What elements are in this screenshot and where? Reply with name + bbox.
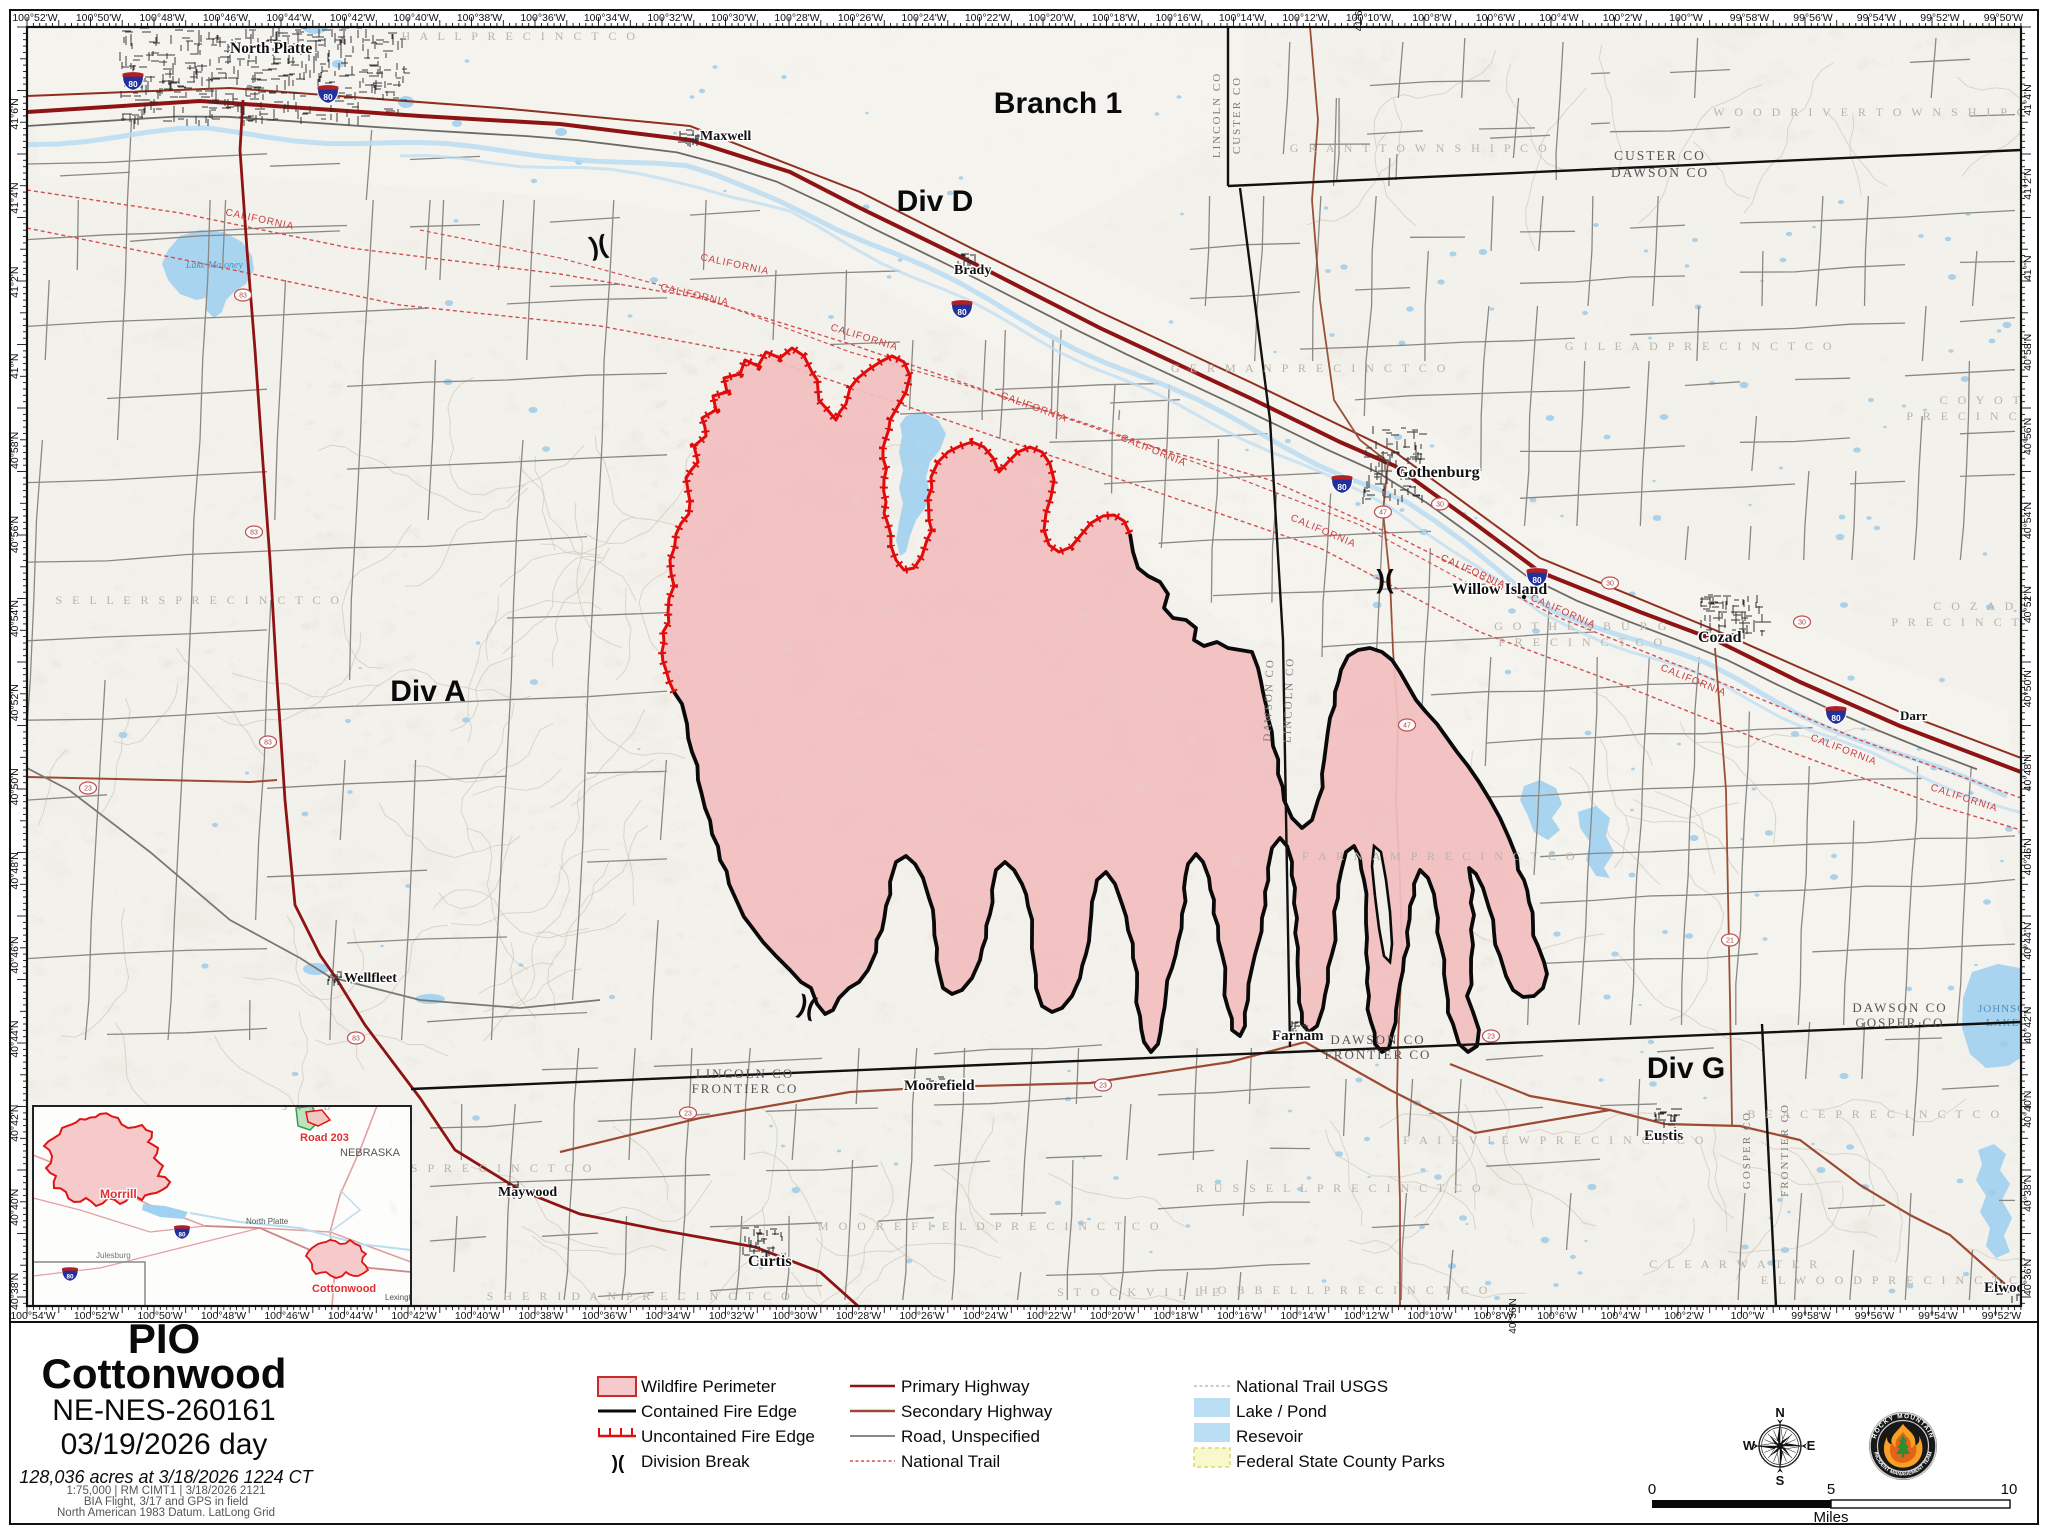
svg-text:23: 23	[1099, 1083, 1107, 1090]
svg-text:100°'W: 100°'W	[1669, 12, 1703, 24]
svg-text:S T O C K V I L L E: S T O C K V I L L E	[1057, 1285, 1223, 1299]
svg-text:100°26'W: 100°26'W	[899, 1310, 944, 1322]
svg-text:Resevoir: Resevoir	[1236, 1427, 1303, 1446]
svg-text:100°2'W: 100°2'W	[1603, 12, 1643, 24]
svg-text:W: W	[1743, 1438, 1756, 1453]
svg-text:99°58'W: 99°58'W	[1730, 12, 1770, 24]
svg-text:100°32'W: 100°32'W	[709, 1310, 754, 1322]
svg-text:40°56'N: 40°56'N	[9, 516, 21, 553]
svg-text:5: 5	[1827, 1481, 1835, 1498]
svg-text:FRONTIER CO: FRONTIER CO	[1325, 1047, 1432, 1062]
svg-text:Div G: Div G	[1647, 1052, 1725, 1085]
svg-text:100°32'W: 100°32'W	[647, 12, 692, 24]
svg-text:Branch 1: Branch 1	[994, 87, 1122, 120]
svg-text:40°44'N: 40°44'N	[9, 1021, 21, 1058]
svg-text:Div A: Div A	[390, 675, 466, 708]
svg-text:23: 23	[84, 786, 92, 793]
svg-text:100°4'W: 100°4'W	[1539, 12, 1579, 24]
svg-text:99°58'W: 99°58'W	[1791, 1310, 1831, 1322]
svg-text:100°22'W: 100°22'W	[1026, 1310, 1071, 1322]
svg-text:41°4'N: 41°4'N	[2022, 84, 2034, 115]
svg-text:80: 80	[128, 79, 138, 89]
svg-text:Morrill: Morrill	[100, 1187, 137, 1201]
svg-text:100°44'W: 100°44'W	[266, 12, 311, 24]
svg-text:F A R N A M P R E C I N C T C: F A R N A M P R E C I N C T C O	[1302, 849, 1578, 863]
svg-text:Contained Fire Edge: Contained Fire Edge	[641, 1402, 797, 1421]
svg-text:40°44'N: 40°44'N	[2022, 922, 2034, 959]
svg-text:40°56'N: 40°56'N	[2022, 418, 2034, 455]
svg-text:40°54'N: 40°54'N	[2022, 502, 2034, 539]
svg-text:80: 80	[1337, 482, 1347, 492]
svg-text:40°46'N: 40°46'N	[9, 936, 21, 973]
svg-text:N: N	[1775, 1405, 1784, 1420]
svg-text:CUSTER CO: CUSTER CO	[1231, 76, 1243, 154]
svg-text:Division Break: Division Break	[641, 1452, 750, 1471]
svg-text:100°36'W: 100°36'W	[582, 1310, 627, 1322]
svg-text:80: 80	[66, 1273, 74, 1280]
svg-text:Gothenburg: Gothenburg	[1396, 464, 1480, 481]
svg-text:100°28'W: 100°28'W	[774, 12, 819, 24]
svg-text:40°38'N: 40°38'N	[2022, 1175, 2034, 1212]
svg-text:99°54'W: 99°54'W	[1857, 12, 1897, 24]
svg-text:80: 80	[1532, 575, 1542, 585]
svg-text:W O O D R I V E R T O W N S: W O O D R I V E R T O W N S H I P C O	[1713, 105, 2047, 119]
svg-text:100°34'W: 100°34'W	[584, 12, 629, 24]
svg-text:41°6'N: 41°6'N	[9, 98, 21, 129]
svg-text:41°2'N: 41°2'N	[2022, 168, 2034, 199]
svg-text:DAWSON CO: DAWSON CO	[1330, 1032, 1425, 1047]
svg-text:41°6': 41°6'	[1354, 9, 1365, 32]
svg-text:Brady: Brady	[954, 263, 991, 278]
svg-text:99°54'W: 99°54'W	[1918, 1310, 1958, 1322]
svg-text:100°38'W: 100°38'W	[457, 12, 502, 24]
svg-text:Curtis: Curtis	[748, 1253, 792, 1270]
svg-text:100°42'W: 100°42'W	[330, 12, 375, 24]
svg-text:Wellfleet: Wellfleet	[344, 971, 397, 986]
svg-text:Primary Highway: Primary Highway	[901, 1377, 1030, 1396]
svg-text:Lake / Pond: Lake / Pond	[1236, 1402, 1327, 1421]
svg-text:40°52'N: 40°52'N	[2022, 586, 2034, 623]
svg-text:100°52'W: 100°52'W	[74, 1310, 119, 1322]
svg-text:Federal State County Parks: Federal State County Parks	[1236, 1452, 1445, 1471]
svg-text:)(: )(	[1376, 564, 1394, 594]
svg-text:100°10'W: 100°10'W	[1407, 1310, 1452, 1322]
svg-text:40°42'N: 40°42'N	[9, 1105, 21, 1142]
svg-text:Secondary Highway: Secondary Highway	[901, 1402, 1053, 1421]
svg-text:100°36'W: 100°36'W	[520, 12, 565, 24]
svg-text:41°'N: 41°'N	[9, 354, 21, 379]
svg-text:100°34'W: 100°34'W	[645, 1310, 690, 1322]
svg-text:Wildfire Perimeter: Wildfire Perimeter	[641, 1377, 776, 1396]
svg-text:83: 83	[264, 740, 272, 747]
svg-text:North Platte: North Platte	[246, 1217, 289, 1226]
svg-text:100°24'W: 100°24'W	[963, 1310, 1008, 1322]
svg-text:40°38'N: 40°38'N	[9, 1273, 21, 1310]
svg-text:G I L E A D P R E C I N C T: G I L E A D P R E C I N C T C O	[1565, 339, 1835, 353]
svg-text:40°40'N: 40°40'N	[9, 1189, 21, 1226]
svg-text:Uncontained Fire Edge: Uncontained Fire Edge	[641, 1427, 815, 1446]
svg-text:100°26'W: 100°26'W	[838, 12, 883, 24]
svg-text:S E L L E R S P R E C I N C: S E L L E R S P R E C I N C T C O	[55, 593, 342, 607]
svg-text:99°52'W: 99°52'W	[1920, 12, 1960, 24]
svg-text:100°50'W: 100°50'W	[76, 12, 121, 24]
svg-text:Cottonwood: Cottonwood	[312, 1283, 376, 1295]
svg-text:80: 80	[178, 1231, 186, 1238]
svg-text:30: 30	[1606, 581, 1614, 588]
svg-text:100°2'W: 100°2'W	[1664, 1310, 1704, 1322]
svg-text:80: 80	[957, 307, 967, 317]
svg-text:99°56'W: 99°56'W	[1793, 12, 1833, 24]
svg-text:B E A C E P R E C I N C T C: B E A C E P R E C I N C T C O	[1747, 1107, 2002, 1121]
svg-text:Maywood: Maywood	[498, 1185, 557, 1200]
svg-text:F A I R V I E W P R E C I N: F A I R V I E W P R E C I N C T C O	[1403, 1133, 1707, 1147]
svg-text:)(: )(	[612, 1453, 625, 1474]
svg-text:Road, Unspecified: Road, Unspecified	[901, 1427, 1040, 1446]
svg-text:Julesburg: Julesburg	[96, 1251, 131, 1260]
svg-text:FRONTIER CO: FRONTIER CO	[692, 1081, 799, 1096]
svg-text:Road 203: Road 203	[300, 1132, 349, 1144]
svg-text:83: 83	[352, 1036, 360, 1043]
svg-text:H O B B E L L P R E C I N C: H O B B E L L P R E C I N C T C O	[1199, 1283, 1491, 1297]
svg-text:Div D: Div D	[897, 185, 974, 218]
svg-text:Moorefield: Moorefield	[904, 1078, 975, 1094]
svg-text:40°36'N: 40°36'N	[2022, 1259, 2034, 1296]
svg-text:128,036 acres at 3/18/2026 122: 128,036 acres at 3/18/2026 1224 CT	[19, 1467, 314, 1487]
svg-text:0: 0	[1648, 1481, 1656, 1498]
svg-text:C O Z A D: C O Z A D	[1933, 599, 2017, 613]
svg-text:Miles: Miles	[1813, 1509, 1848, 1526]
svg-text:40°50'N: 40°50'N	[2022, 670, 2034, 707]
svg-text:100°6'W: 100°6'W	[1476, 12, 1516, 24]
svg-text:21: 21	[1726, 938, 1734, 945]
svg-text:100°12'W: 100°12'W	[1344, 1310, 1389, 1322]
svg-text:H A L L P R E C I N C T C O: H A L L P R E C I N C T C O	[401, 29, 638, 43]
svg-text:100°28'W: 100°28'W	[836, 1310, 881, 1322]
svg-text:100°14'W: 100°14'W	[1280, 1310, 1325, 1322]
svg-text:23: 23	[684, 1111, 692, 1118]
svg-text:99°52'W: 99°52'W	[1982, 1310, 2022, 1322]
svg-text:100°16'W: 100°16'W	[1217, 1310, 1262, 1322]
svg-text:30: 30	[1798, 620, 1806, 627]
svg-text:GOSPER CO: GOSPER CO	[1741, 1111, 1753, 1189]
svg-text:100°24'W: 100°24'W	[901, 12, 946, 24]
svg-text:North American 1983 Datum. Lat: North American 1983 Datum. LatLong Grid	[57, 1507, 275, 1519]
svg-text:Cottonwood: Cottonwood	[42, 1350, 287, 1397]
svg-text:23: 23	[1487, 1034, 1495, 1041]
svg-text:Farnam: Farnam	[1272, 1028, 1324, 1044]
svg-text:Maxwell: Maxwell	[700, 129, 751, 144]
svg-text:40°48'N: 40°48'N	[9, 852, 21, 889]
svg-text:100°40'W: 100°40'W	[393, 12, 438, 24]
svg-text:100°'W: 100°'W	[1731, 1310, 1765, 1322]
svg-text:G E R M A N P R E C I N C T: G E R M A N P R E C I N C T C O	[1171, 361, 1449, 375]
svg-text:S H E R I D A N P R E C I N: S H E R I D A N P R E C I N C T C O	[487, 1289, 794, 1303]
svg-text:C L E A R W A T E R: C L E A R W A T E R	[1649, 1257, 1821, 1271]
svg-text:99°50'W: 99°50'W	[1984, 12, 2024, 24]
svg-text:E: E	[1807, 1438, 1816, 1453]
svg-text:DAWSON CO: DAWSON CO	[1611, 165, 1709, 180]
svg-text:100°22'W: 100°22'W	[965, 12, 1010, 24]
svg-text:100°12'W: 100°12'W	[1282, 12, 1327, 24]
svg-text:NEBRASKA: NEBRASKA	[340, 1147, 401, 1159]
svg-text:100°46'W: 100°46'W	[203, 12, 248, 24]
svg-text:100°4'W: 100°4'W	[1601, 1310, 1641, 1322]
svg-text:100°8'W: 100°8'W	[1412, 12, 1452, 24]
svg-text:P R E C I N C T C O: P R E C I N C T C O	[1498, 635, 1665, 649]
svg-text:100°10'W: 100°10'W	[1346, 12, 1391, 24]
svg-text:100°54'W: 100°54'W	[10, 1310, 55, 1322]
svg-text:40°36'N: 40°36'N	[1508, 1298, 1519, 1333]
svg-text:100°18'W: 100°18'W	[1092, 12, 1137, 24]
svg-text:40°42'N: 40°42'N	[2022, 1007, 2034, 1044]
svg-text:Darr: Darr	[1900, 708, 1928, 723]
svg-text:100°18'W: 100°18'W	[1153, 1310, 1198, 1322]
svg-text:10: 10	[2001, 1481, 2018, 1498]
svg-text:40°52'N: 40°52'N	[9, 684, 21, 721]
svg-text:National Trail USGS: National Trail USGS	[1236, 1377, 1388, 1396]
svg-text:National Trail: National Trail	[901, 1452, 1000, 1471]
svg-text:99°56'W: 99°56'W	[1855, 1310, 1895, 1322]
svg-text:40°54'N: 40°54'N	[9, 600, 21, 637]
svg-text:47: 47	[1379, 510, 1387, 517]
svg-text:100°16'W: 100°16'W	[1155, 12, 1200, 24]
svg-text:100°40'W: 100°40'W	[455, 1310, 500, 1322]
svg-text:GOSPER CO: GOSPER CO	[1855, 1015, 1944, 1030]
svg-text:100°20'W: 100°20'W	[1090, 1310, 1135, 1322]
svg-text:100°42'W: 100°42'W	[391, 1310, 436, 1322]
svg-text:100°20'W: 100°20'W	[1028, 12, 1073, 24]
svg-text:40°46'N: 40°46'N	[2022, 838, 2034, 875]
svg-text:E L W O O D P R E C I N C T: E L W O O D P R E C I N C T C O	[1761, 1273, 2039, 1287]
svg-text:100°44'W: 100°44'W	[328, 1310, 373, 1322]
svg-text:CUSTER CO: CUSTER CO	[1614, 148, 1706, 163]
svg-text:100°14'W: 100°14'W	[1219, 12, 1264, 24]
svg-text:41°4'N: 41°4'N	[9, 182, 21, 213]
svg-text:41°'N: 41°'N	[2022, 255, 2034, 280]
svg-text:100°38'W: 100°38'W	[518, 1310, 563, 1322]
svg-text:83: 83	[239, 293, 247, 300]
svg-text:S: S	[1776, 1473, 1785, 1488]
svg-text:47: 47	[1403, 723, 1411, 730]
svg-text:83: 83	[250, 530, 258, 537]
svg-text:40°48'N: 40°48'N	[2022, 754, 2034, 791]
svg-text:North Platte: North Platte	[230, 40, 312, 57]
svg-text:R U S S E L L P R E C I N C: R U S S E L L P R E C I N C T C O	[1196, 1181, 1484, 1195]
svg-text:100°48'W: 100°48'W	[139, 12, 184, 24]
svg-text:100°48'W: 100°48'W	[201, 1310, 246, 1322]
svg-text:40°58'N: 40°58'N	[2022, 334, 2034, 371]
svg-text:41°2'N: 41°2'N	[9, 267, 21, 298]
svg-text:03/19/2026 day: 03/19/2026 day	[61, 1428, 268, 1461]
svg-text:NE-NES-260161: NE-NES-260161	[52, 1394, 275, 1427]
svg-text:80: 80	[323, 92, 333, 102]
svg-text:30: 30	[1436, 502, 1444, 509]
svg-text:100°30'W: 100°30'W	[711, 12, 756, 24]
svg-text:40°58'N: 40°58'N	[9, 432, 21, 469]
svg-text:100°46'W: 100°46'W	[264, 1310, 309, 1322]
svg-text:40°50'N: 40°50'N	[9, 768, 21, 805]
svg-text:LINCOLN CO: LINCOLN CO	[1211, 72, 1223, 158]
svg-text:100°6'W: 100°6'W	[1537, 1310, 1577, 1322]
svg-text:DAWSON CO: DAWSON CO	[1852, 1000, 1947, 1015]
svg-text:M O O R E F I E L D P R E C: M O O R E F I E L D P R E C I N C T C O	[818, 1219, 1162, 1233]
svg-text:Cozad: Cozad	[1698, 629, 1742, 646]
svg-text:100°52'W: 100°52'W	[12, 12, 57, 24]
svg-text:40°40'N: 40°40'N	[2022, 1091, 2034, 1128]
svg-text:80: 80	[1831, 713, 1841, 723]
svg-text:100°30'W: 100°30'W	[772, 1310, 817, 1322]
svg-text:LINCOLN CO: LINCOLN CO	[696, 1066, 794, 1081]
svg-text:G R A N T T O W N S H I P C: G R A N T T O W N S H I P C O	[1290, 141, 1550, 155]
